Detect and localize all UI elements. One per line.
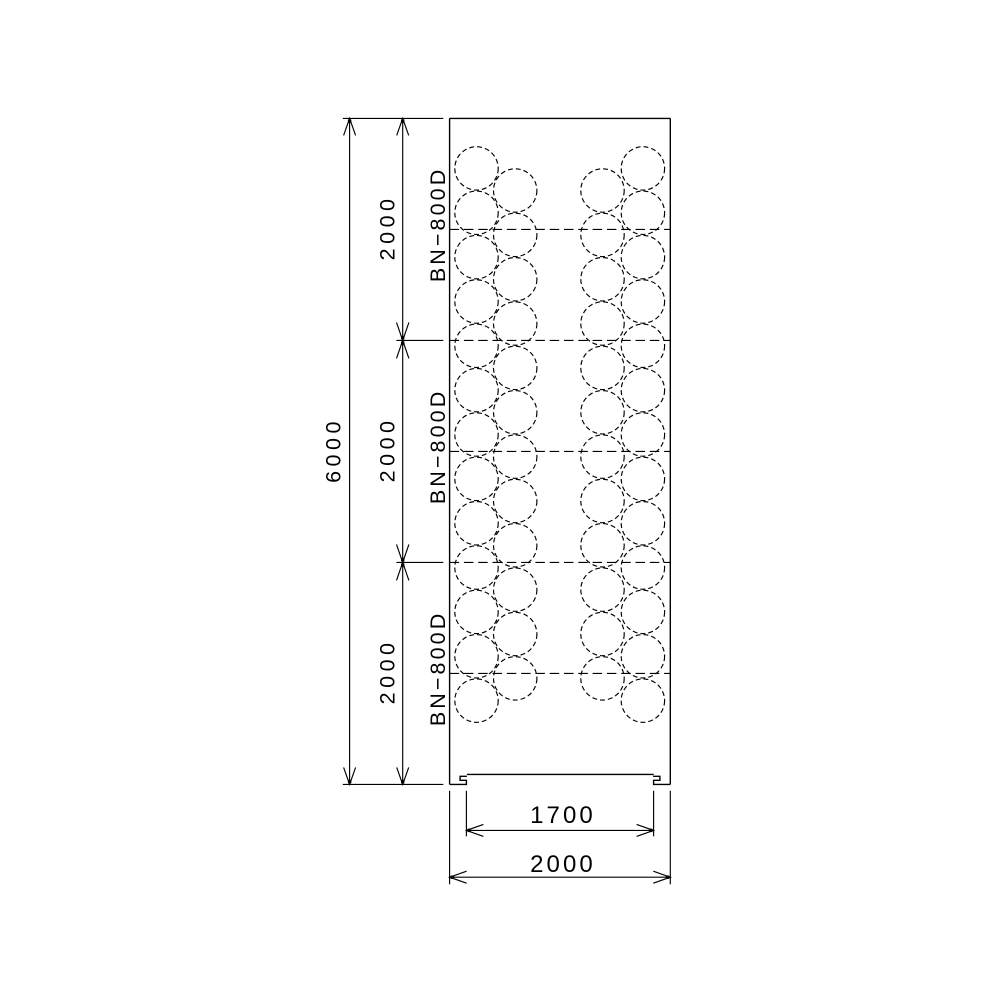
svg-text:1700: 1700 xyxy=(530,802,596,829)
svg-text:BN−800D: BN−800D xyxy=(426,389,450,505)
svg-text:2000: 2000 xyxy=(530,851,596,878)
svg-text:6000: 6000 xyxy=(322,417,346,483)
svg-text:BN−800D: BN−800D xyxy=(426,611,450,727)
svg-text:BN−800D: BN−800D xyxy=(426,167,450,283)
svg-text:2000: 2000 xyxy=(376,194,400,260)
svg-text:2000: 2000 xyxy=(376,416,400,482)
svg-text:2000: 2000 xyxy=(376,638,400,704)
